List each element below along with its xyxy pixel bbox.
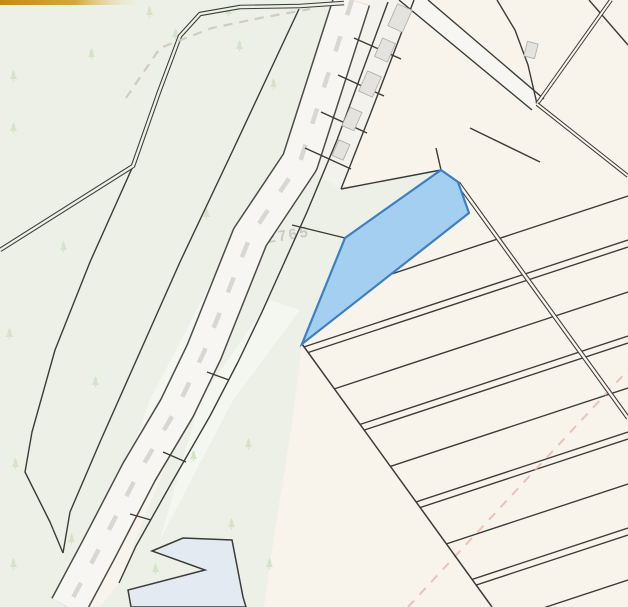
accent-orange-bar (0, 0, 137, 5)
cadastral-map-viewport[interactable]: 2765 (0, 0, 628, 607)
cadastral-map[interactable]: 2765 (0, 0, 628, 607)
